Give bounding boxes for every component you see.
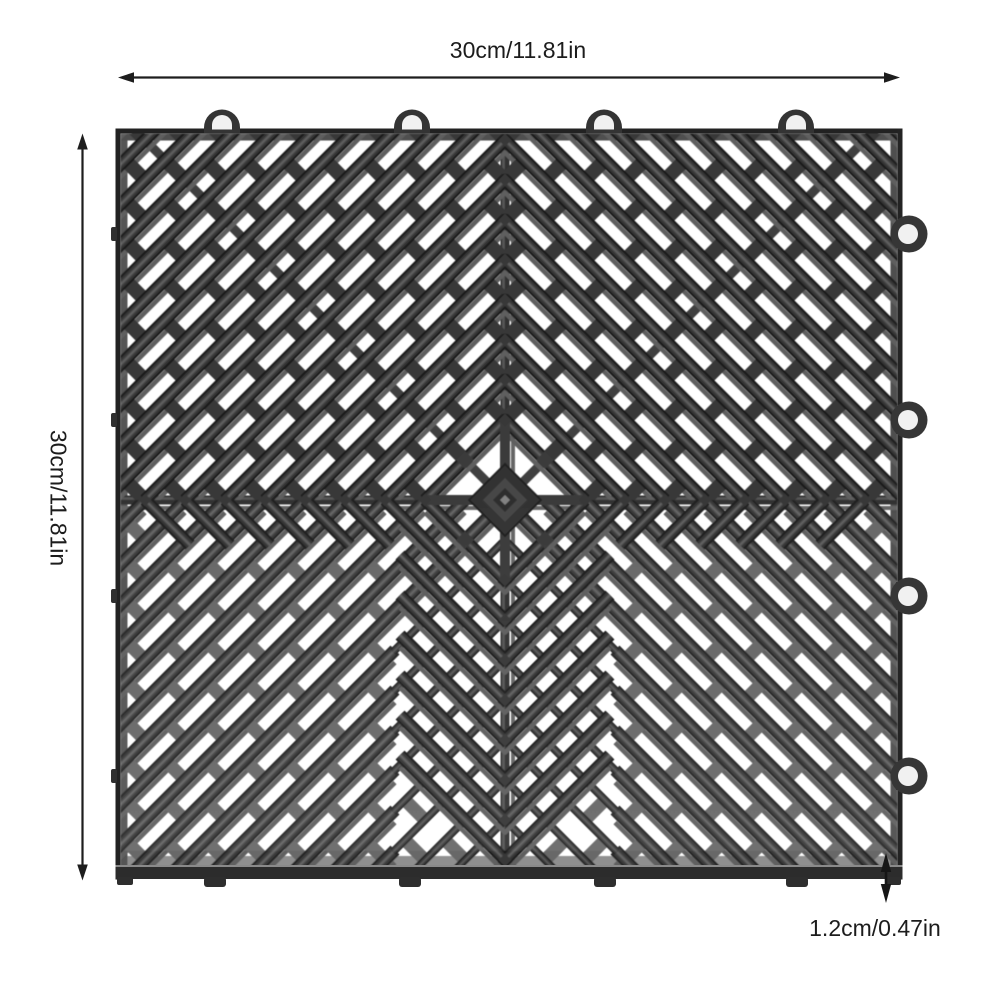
svg-text:1.2cm/0.47in: 1.2cm/0.47in	[809, 915, 941, 941]
svg-text:30cm/11.81in: 30cm/11.81in	[450, 37, 586, 63]
svg-text:30cm/11.81in: 30cm/11.81in	[46, 430, 72, 566]
